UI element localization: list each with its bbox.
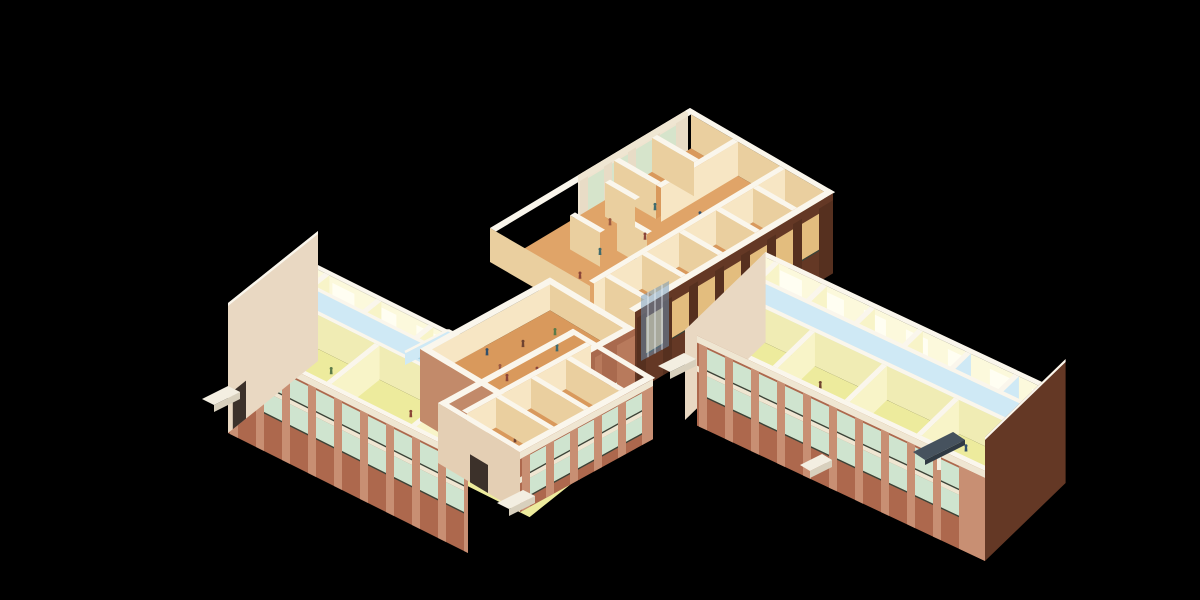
- building-cutaway-illustration: [0, 0, 1200, 600]
- east-classroom-wing: [685, 252, 1066, 561]
- isometric-scene-canvas: [0, 0, 1200, 600]
